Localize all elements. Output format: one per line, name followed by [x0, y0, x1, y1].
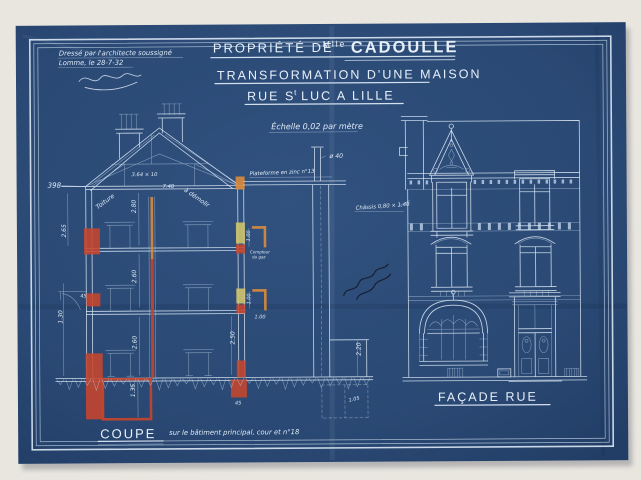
title-line3-prefix: RUE S	[247, 89, 295, 103]
annotation-2-60: 2.60	[131, 270, 138, 284]
annotation-398: 398	[48, 182, 62, 190]
annotation-40: ø 40	[328, 153, 343, 160]
coupe-subtitle: sur le bâtiment principal, cour et n°18	[169, 428, 300, 437]
title-line1-name: CADOULLE	[351, 38, 459, 57]
annotation-2-80: 2.80	[131, 200, 138, 214]
annotation-1-00: 1.00	[246, 230, 252, 241]
annotation-2-65: 2.65	[61, 224, 68, 238]
annotation-7-48: 7.48	[163, 184, 175, 190]
title-line1-sup: Mlle	[323, 39, 347, 49]
annotation-2-20: 2.20	[356, 342, 363, 356]
annotation-1-00: 1.00	[254, 314, 265, 320]
facade-label: FAÇADE RUE	[438, 390, 538, 405]
title-line3-post: LUC A LILLE	[301, 89, 395, 104]
blueprint-canvas: Dressé par l'architecte soussigné Lomme,…	[0, 0, 641, 480]
blueprint-sheet-group: Dressé par l'architecte soussigné Lomme,…	[16, 22, 633, 470]
scanned-blueprint-page: Dressé par l'architecte soussigné Lomme,…	[0, 0, 641, 480]
stamp-line1: Dressé par l'architecte soussigné	[59, 49, 172, 58]
annotation-2-50: 2.50	[230, 331, 237, 345]
annotation-3-64-10: 3.64 × 10	[132, 172, 159, 178]
annotation-1-30: 1.30	[57, 310, 64, 324]
stamp-line2: Lomme, le 28-7-32	[59, 59, 124, 67]
annotation-45: 45	[235, 400, 241, 406]
title-line2: TRANSFORMATION D'UNE MAISON	[217, 67, 482, 83]
scale-note: Échelle 0,02 par mètre	[271, 120, 363, 132]
annotation-1-00: 1.00	[246, 293, 252, 304]
annotation-du-gaz: du gaz	[252, 254, 266, 259]
title-line1-prefix: PROPRIÉTÉ DE	[213, 40, 334, 56]
title-line3-sup: t	[294, 88, 298, 97]
annotation-2-60: 2.60	[132, 336, 139, 350]
facade-label-block: FAÇADE RUE	[435, 390, 550, 406]
annotation-1-35: 1.35	[130, 384, 137, 398]
coupe-label: COUPE	[100, 426, 156, 441]
annotation-45: 45	[80, 293, 86, 299]
